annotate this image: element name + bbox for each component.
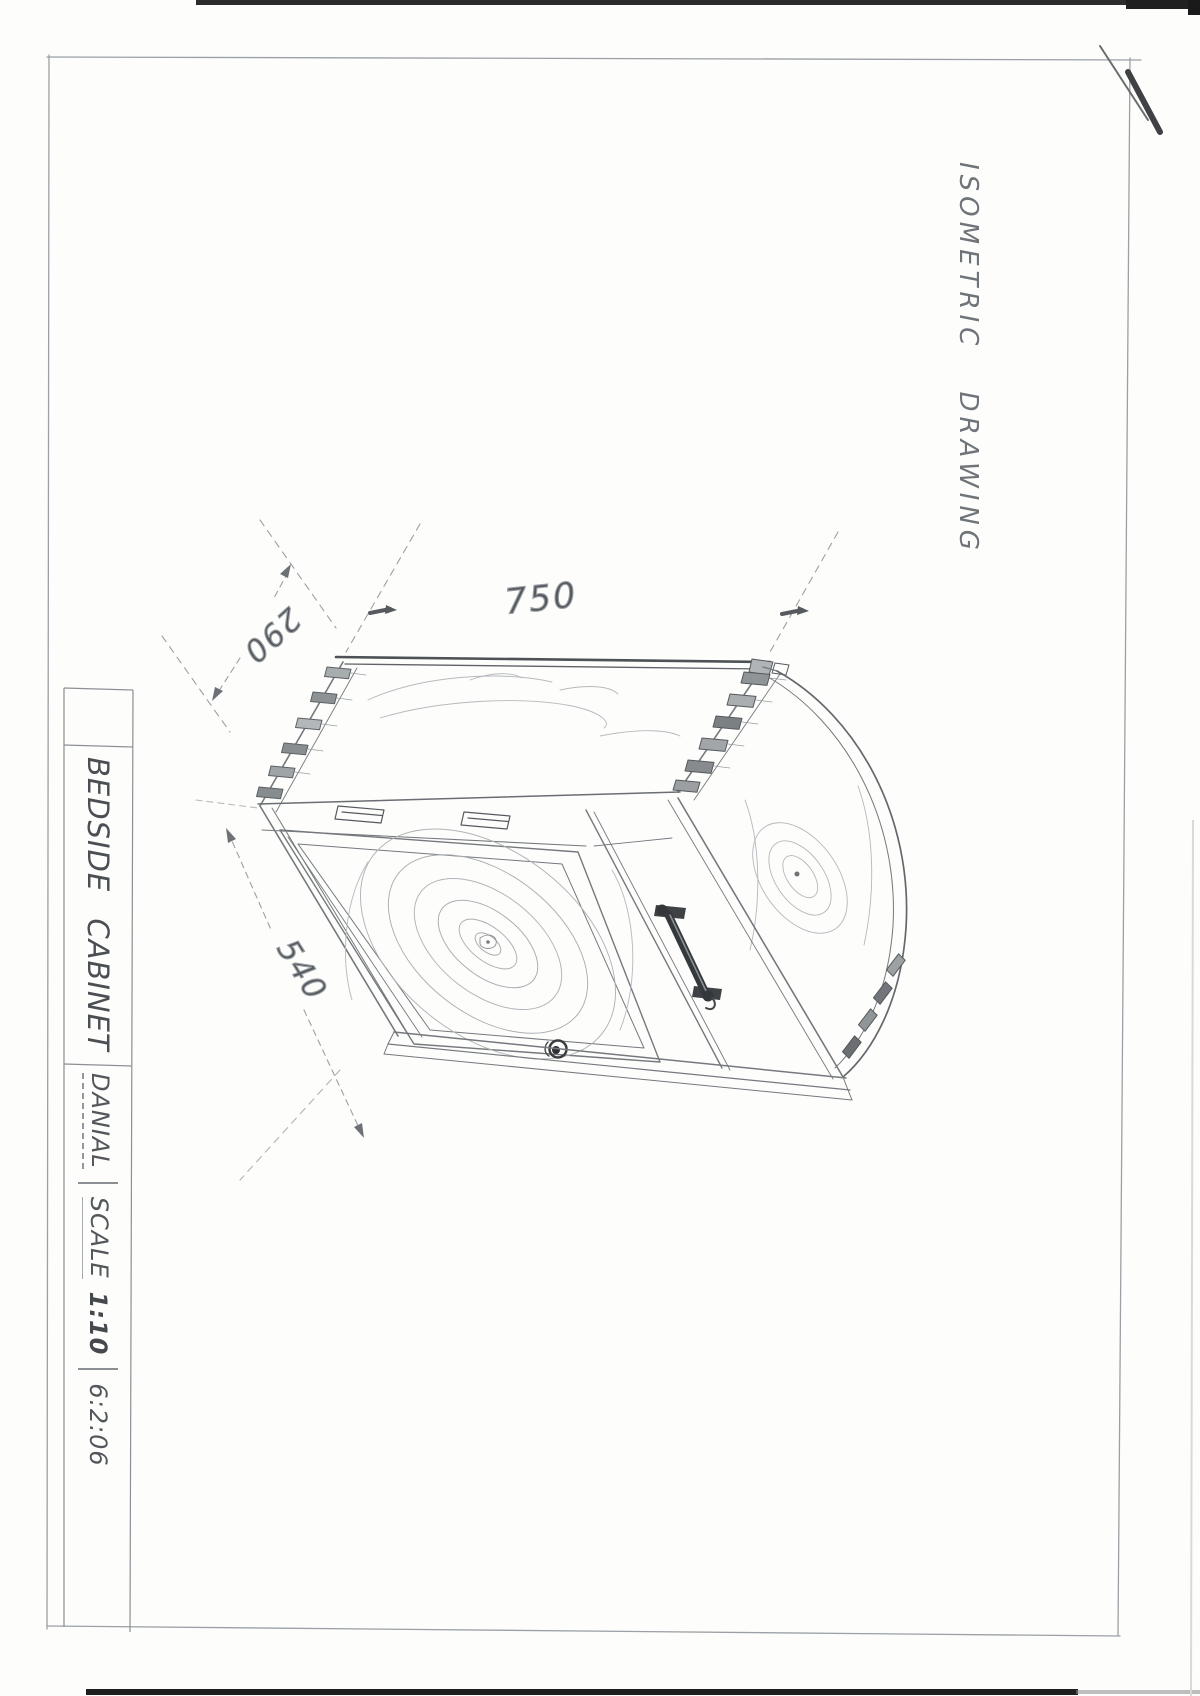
dovetail-joints-bottom — [841, 953, 906, 1059]
dim-depth-label: 290 — [235, 600, 308, 670]
scan-edge-top — [196, 0, 1200, 15]
scan-edge-bottom — [86, 1689, 1200, 1695]
date-value: 6:2:06 — [84, 1383, 112, 1466]
author-name: DANIAL — [82, 1073, 114, 1169]
dim-height-label: 540 — [269, 933, 334, 1007]
top-wood-grain — [368, 674, 680, 736]
scale-value: 1:10 — [84, 1292, 112, 1356]
dim-width-label: 750 — [503, 576, 580, 623]
hinge-marks — [335, 806, 510, 829]
dimension-depth-290: 290 — [162, 520, 336, 732]
cell-divider — [78, 1182, 118, 1184]
scale-word: SCALE — [83, 1197, 114, 1279]
front-top-band — [258, 792, 680, 846]
dimension-width-750: 750 — [346, 524, 838, 652]
pencil-drawing-layer: 750 290 540 — [0, 0, 1200, 1696]
title-block-info-cell: DANIAL SCALE 1:10 6:2:06 — [69, 1071, 127, 1621]
drawing-title: BEDSIDE CABINET — [81, 757, 115, 1052]
cabinet-door — [280, 782, 660, 1106]
cabinet-side-face — [733, 667, 906, 1077]
cell-divider — [78, 1368, 118, 1370]
cabinet-drawer — [586, 798, 843, 1079]
cabinet-top-face — [260, 657, 780, 812]
dimension-height-540: 540 — [196, 800, 364, 1180]
front-left-edge — [260, 806, 408, 1036]
drawer-handle — [654, 905, 722, 1010]
paper-edge-shadow — [1191, 820, 1193, 1696]
cabinet-base — [384, 1032, 852, 1100]
dovetail-joints-left — [257, 667, 367, 799]
cabinet-drawing — [257, 657, 907, 1106]
drawing-type-label: ISOMETRIC DRAWING — [948, 162, 988, 580]
title-block-title-cell: BEDSIDE CABINET — [67, 753, 129, 1060]
scanned-drawing-sheet: 750 290 540 ISOMETRIC DRAWING BEDSIDE CA… — [0, 0, 1200, 1696]
drawing-type-text: ISOMETRIC DRAWING — [953, 162, 983, 555]
